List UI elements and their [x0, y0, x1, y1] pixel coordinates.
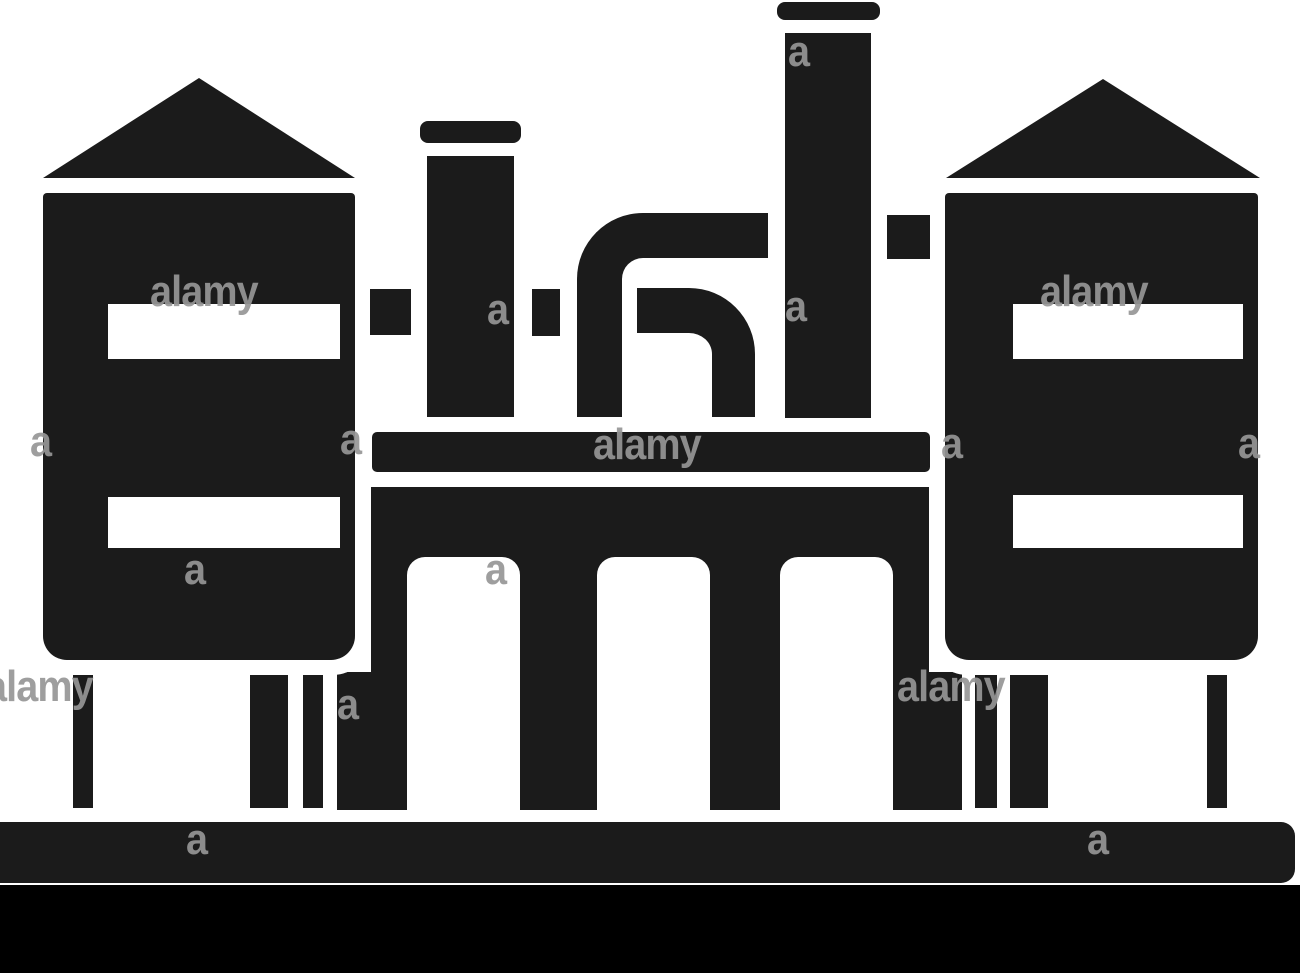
watermark-text: alamy: [0, 665, 93, 709]
silo-leg: [1010, 675, 1048, 808]
silo-stripe: [108, 497, 340, 548]
footer-banner: alamy Image ID: T75CM1 www.alamy.com: [0, 885, 1300, 973]
right-chimney-stack-icon: [785, 33, 871, 418]
watermark-text: alamy: [150, 270, 258, 314]
pipe-segment: [887, 215, 930, 259]
left-silo-roof-icon: [43, 78, 355, 178]
watermark-text: a: [1238, 422, 1259, 466]
building-window: [780, 557, 893, 810]
watermark-text: alamy: [1040, 270, 1148, 314]
watermark-text: a: [337, 683, 358, 727]
watermark-text: a: [340, 418, 361, 462]
pipe-segment: [370, 289, 411, 335]
right-silo-body-icon: [945, 193, 1258, 660]
watermark-text: a: [485, 548, 506, 592]
watermark-text: alamy: [593, 423, 701, 467]
silo-leg: [250, 675, 288, 808]
silo-leg: [303, 675, 323, 808]
watermark-text: a: [788, 30, 809, 74]
right-silo-roof-icon: [946, 79, 1260, 178]
watermark-text: a: [186, 818, 207, 862]
stock-photo-page: aalamyaaalamyaaalamyaaaaalamyaalamyaa al…: [0, 0, 1300, 973]
silo-stripe: [1013, 495, 1243, 548]
building-window: [407, 557, 520, 810]
watermark-text: a: [30, 420, 51, 464]
watermark-text: a: [785, 285, 806, 329]
silo-leg: [1207, 675, 1227, 808]
watermark-text: a: [487, 288, 508, 332]
pipe-segment: [532, 289, 560, 336]
right-chimney-cap-icon: [777, 2, 880, 20]
watermark-text: a: [1087, 818, 1108, 862]
watermark-text: a: [184, 548, 205, 592]
watermark-text: a: [941, 422, 962, 466]
watermark-text: alamy: [897, 665, 1005, 709]
building-window: [597, 557, 710, 810]
left-chimney-cap-icon: [420, 121, 521, 143]
